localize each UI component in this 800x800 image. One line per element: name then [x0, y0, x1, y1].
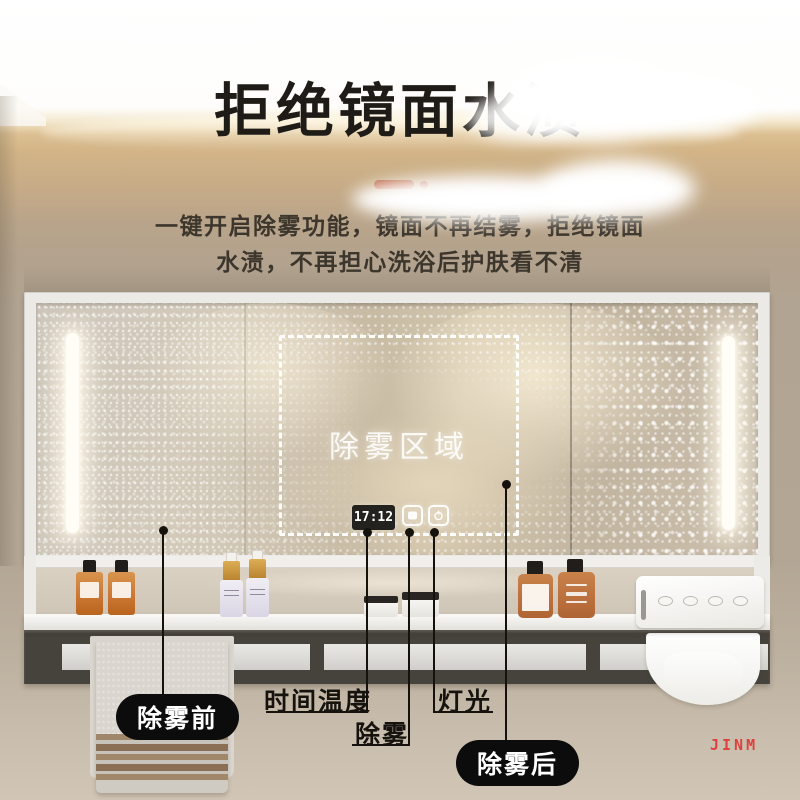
- tissue-box-button: [658, 596, 673, 606]
- tissue-box: [636, 576, 764, 628]
- orange-bottle-label: [112, 582, 131, 598]
- subtitle-line-2: 水渍，不再担心洗浴后护肤看不清: [0, 243, 800, 277]
- cream-jar-lid: [364, 596, 398, 603]
- light-button[interactable]: [428, 505, 449, 526]
- cabinet-underside: [24, 556, 770, 568]
- defog-button[interactable]: [402, 505, 423, 526]
- fog-cloud: [468, 96, 583, 140]
- dropper-bottle-label: [224, 595, 239, 596]
- led-strip-right: [722, 336, 735, 530]
- defog-zone-label: 除雾区域: [329, 422, 469, 466]
- dropper-bottle-label: [224, 590, 239, 591]
- power-icon: [433, 510, 444, 521]
- callout-line-before: [162, 534, 164, 698]
- tissue-box-slot: [641, 590, 646, 620]
- mirror-door-seam: [244, 303, 246, 555]
- product-poster: 拒绝镜面水渍 一键开启除雾功能，镜面不再结雾，拒绝镜面 水渍，不再担心洗浴后护肤…: [0, 0, 800, 800]
- label-before-defog: 除雾前: [116, 694, 239, 740]
- amber-bottle-text: [566, 592, 587, 596]
- towel-hem: [96, 780, 228, 793]
- amber-bottle-label: [522, 584, 549, 611]
- fog-cloud: [540, 160, 695, 218]
- fog-cloud: [612, 72, 762, 132]
- dropper-bottle-label: [250, 594, 265, 595]
- rack-panel: [324, 644, 586, 670]
- dropper-bottle: [220, 580, 243, 617]
- dropper-bottle-neck: [223, 561, 240, 581]
- clock-display: 17:12: [352, 505, 395, 530]
- dropper-bottle-label: [250, 589, 265, 590]
- mirror-door-seam: [570, 303, 572, 555]
- led-strip-left: [66, 333, 79, 533]
- label-defog: 除雾: [355, 715, 409, 751]
- label-time-temp: 时间温度: [264, 682, 372, 718]
- callout-line-after: [505, 488, 507, 742]
- defog-zone-outline: 除雾区域: [279, 335, 519, 536]
- tissue-box-button: [708, 596, 723, 606]
- callout-line-light: [433, 536, 435, 713]
- mirror-surface: 除雾区域 17:12: [36, 303, 758, 555]
- cream-jar: [364, 603, 398, 617]
- dropper-bottle: [246, 578, 269, 617]
- wall-corner-shadow: [0, 96, 18, 566]
- amber-bottle-text: [566, 601, 587, 603]
- orange-bottle-label: [80, 582, 99, 598]
- dropper-bottle-neck: [249, 559, 266, 579]
- label-light: 灯光: [438, 682, 492, 718]
- label-after-defog: 除雾后: [456, 740, 579, 786]
- brand-watermark: JINM: [710, 736, 758, 754]
- tissue-box-button: [683, 596, 698, 606]
- defog-icon: [407, 510, 418, 521]
- towel-stripes: [96, 734, 228, 780]
- amber-bottle-text: [566, 584, 587, 586]
- tissue-box-button: [733, 596, 748, 606]
